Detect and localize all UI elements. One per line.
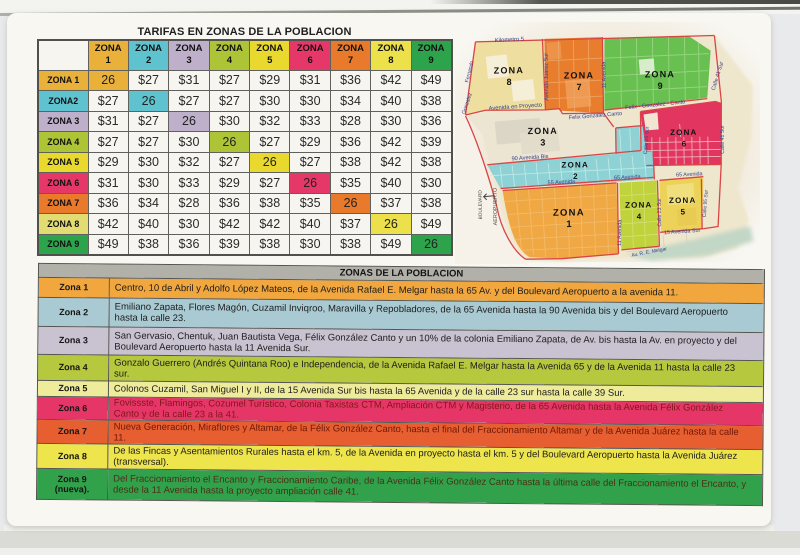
svg-text:ZONA: ZONA [561, 160, 589, 169]
svg-text:11 Avenida: 11 Avenida [601, 61, 607, 89]
svg-text:ZONA: ZONA [553, 207, 585, 218]
svg-text:ZONA: ZONA [494, 65, 524, 75]
svg-text:1: 1 [566, 219, 572, 230]
svg-text:ZONA: ZONA [645, 69, 675, 79]
svg-text:Avenida Juarez Sur: Avenida Juarez Sur [544, 53, 551, 101]
svg-text:6: 6 [682, 139, 687, 148]
svg-text:ZONA: ZONA [564, 70, 594, 80]
svg-text:8: 8 [506, 77, 511, 87]
svg-text:ZONA: ZONA [670, 128, 698, 137]
svg-text:7: 7 [577, 82, 582, 92]
svg-text:ZONA: ZONA [625, 200, 653, 209]
svg-text:3: 3 [540, 137, 545, 147]
svg-text:2: 2 [573, 172, 578, 181]
svg-text:4: 4 [637, 212, 642, 221]
svg-text:9: 9 [658, 81, 663, 91]
svg-text:Calle 23 Sur: Calle 23 Sur [657, 198, 663, 227]
svg-text:11 Avenida: 11 Avenida [617, 220, 624, 246]
svg-text:AEROPUERTO: AEROPUERTO [493, 188, 500, 226]
svg-text:ZONA: ZONA [528, 126, 558, 136]
svg-text:BOULEVARD: BOULEVARD [478, 190, 484, 220]
svg-text:ZONA: ZONA [669, 196, 697, 205]
svg-text:Calle 41 Sur: Calle 41 Sur [720, 125, 726, 154]
svg-text:5: 5 [681, 207, 686, 216]
